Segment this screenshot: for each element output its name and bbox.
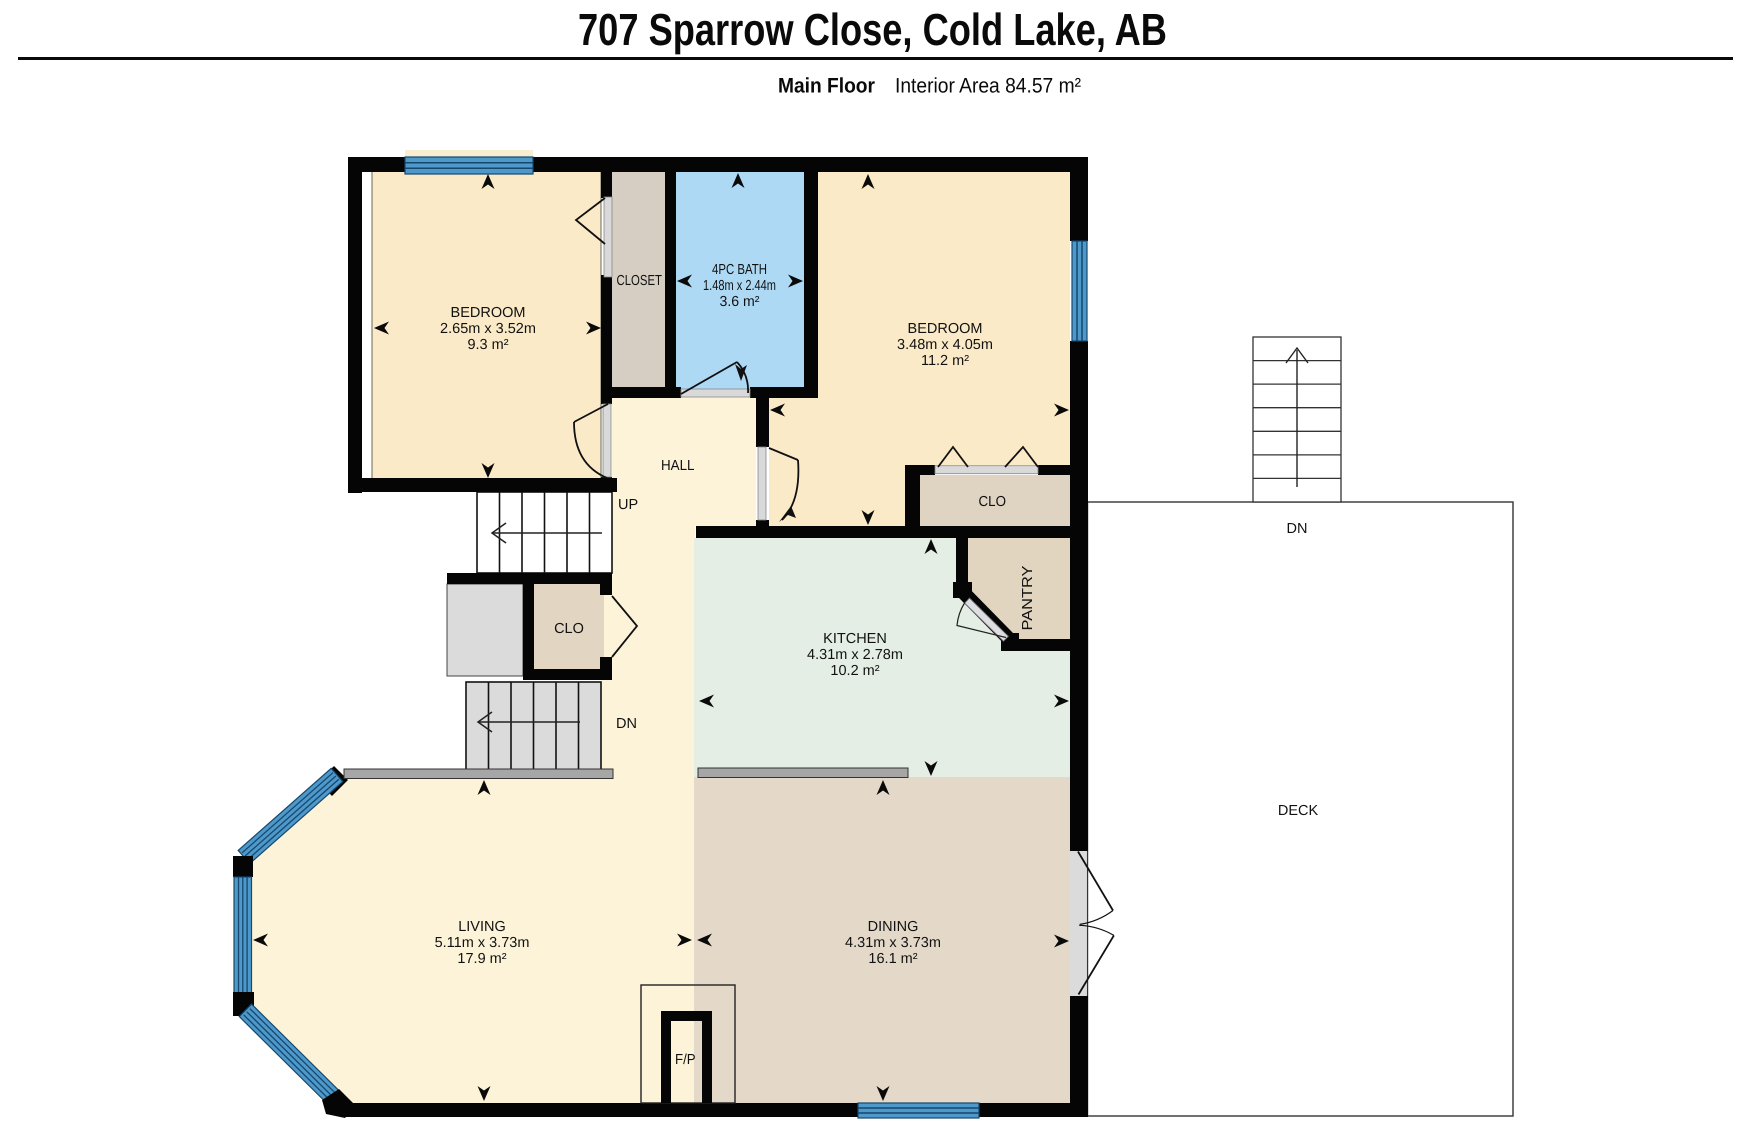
svg-text:PANTRY: PANTRY <box>1020 565 1036 630</box>
svg-text:UP: UP <box>618 497 638 513</box>
svg-text:LIVING: LIVING <box>458 919 506 935</box>
svg-text:11.2 m²: 11.2 m² <box>921 353 969 369</box>
svg-text:DINING: DINING <box>868 919 919 935</box>
svg-text:2.65m x 3.52m: 2.65m x 3.52m <box>440 321 536 337</box>
svg-text:DN: DN <box>1287 521 1308 537</box>
svg-text:3.48m x 4.05m: 3.48m x 4.05m <box>897 337 993 353</box>
svg-text:DN: DN <box>616 716 637 732</box>
svg-text:4.31m x 2.78m: 4.31m x 2.78m <box>807 647 903 663</box>
svg-text:3.6 m²: 3.6 m² <box>720 294 760 310</box>
svg-text:CLOSET: CLOSET <box>617 273 663 289</box>
svg-text:4PC BATH: 4PC BATH <box>712 262 767 278</box>
svg-text:BEDROOM: BEDROOM <box>908 321 983 337</box>
svg-text:16.1 m²: 16.1 m² <box>868 951 917 967</box>
svg-text:9.3 m²: 9.3 m² <box>467 337 508 353</box>
svg-text:BEDROOM: BEDROOM <box>451 305 526 321</box>
svg-text:KITCHEN: KITCHEN <box>823 631 887 647</box>
svg-text:CLO: CLO <box>554 621 584 637</box>
svg-text:Main Floor: Main Floor <box>778 75 875 98</box>
svg-text:4.31m x 3.73m: 4.31m x 3.73m <box>845 935 941 951</box>
svg-text:5.11m x 3.73m: 5.11m x 3.73m <box>435 935 530 951</box>
svg-text:HALL: HALL <box>661 458 695 474</box>
svg-text:10.2 m²: 10.2 m² <box>830 663 879 679</box>
svg-text:Interior Area 84.57 m²: Interior Area 84.57 m² <box>895 75 1081 98</box>
svg-text:17.9 m²: 17.9 m² <box>457 951 506 967</box>
svg-text:1.48m x 2.44m: 1.48m x 2.44m <box>703 278 776 294</box>
svg-text:707 Sparrow Close, Cold Lake,: 707 Sparrow Close, Cold Lake, AB <box>578 4 1167 55</box>
svg-text:DECK: DECK <box>1278 803 1319 819</box>
svg-text:CLO: CLO <box>979 494 1007 510</box>
svg-text:F/P: F/P <box>675 1052 696 1068</box>
